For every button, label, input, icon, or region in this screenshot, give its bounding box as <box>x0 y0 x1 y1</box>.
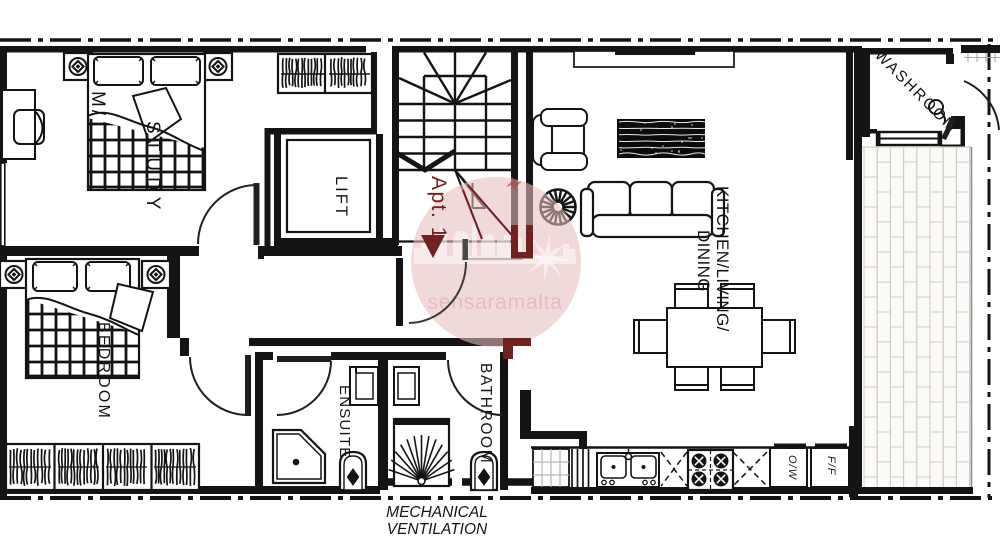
svg-text:KITCHEN/LIVING/: KITCHEN/LIVING/ <box>713 186 732 332</box>
svg-text:Apt. 1: Apt. 1 <box>427 176 450 240</box>
svg-text:DINING: DINING <box>694 230 713 292</box>
svg-text:O/W: O/W <box>786 455 798 481</box>
svg-text:M/: M/ <box>87 91 108 118</box>
svg-text:sensaramalta: sensaramalta <box>427 290 562 314</box>
svg-text:BEDROOM: BEDROOM <box>95 322 112 420</box>
svg-text:STUDY: STUDY <box>142 121 163 215</box>
svg-text:MECHANICAL: MECHANICAL <box>386 504 488 521</box>
svg-text:VENTILATION: VENTILATION <box>387 521 488 538</box>
svg-text:ENSUITE: ENSUITE <box>336 385 353 458</box>
svg-text:LIFT: LIFT <box>332 176 350 218</box>
svg-text:F/F: F/F <box>825 456 837 476</box>
